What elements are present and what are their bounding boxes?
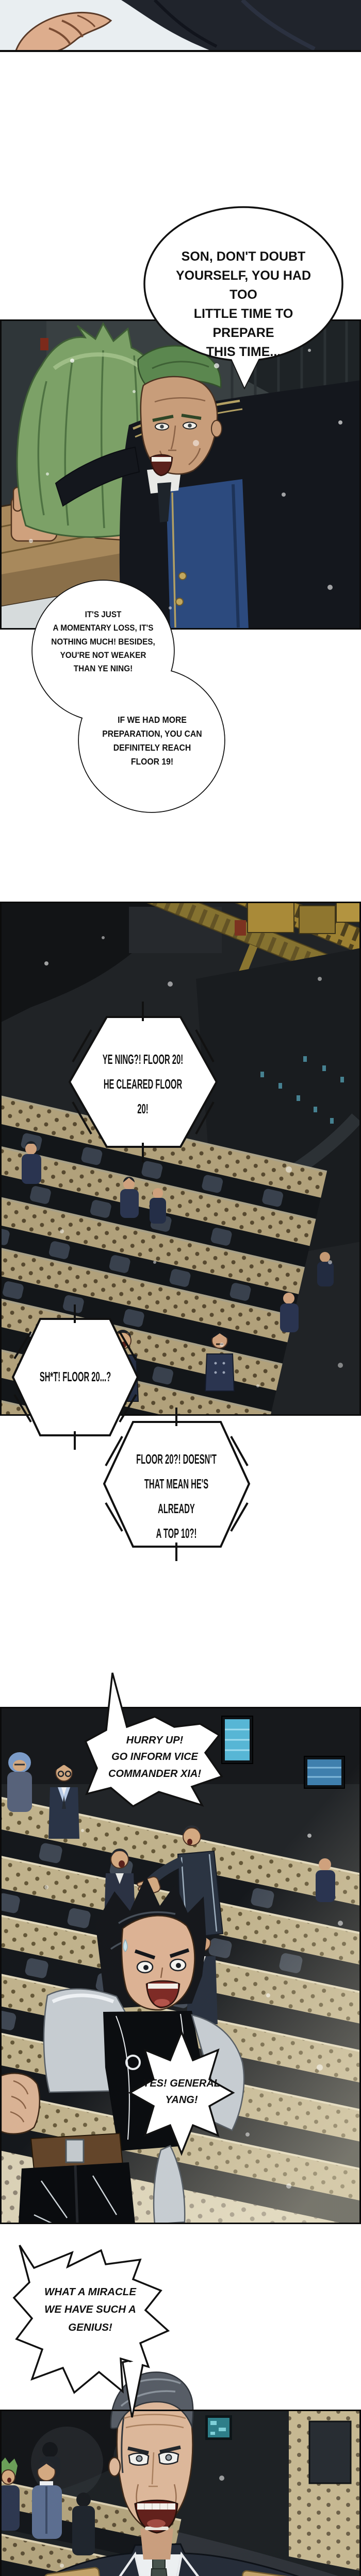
speech-bubble-3-text: IF WE HAD MORE PREPARATION, YOU CAN DEFI…: [92, 713, 212, 769]
panel-general-art: [0, 2349, 361, 2576]
panel-arena-reaction: [0, 1707, 361, 2224]
panel-previous-scene: [0, 0, 361, 52]
speech-bubble-6-text: FLOOR 20?! DOESN'T THAT MEAN HE'S ALREAD…: [133, 1447, 221, 1546]
panel-reaction-art: [0, 1707, 361, 2224]
hooded-woman: [7, 1752, 32, 1812]
belt-buckle: [66, 2140, 84, 2162]
jacket-chest: [103, 2011, 202, 2151]
panel-arena-announcement: [0, 902, 361, 1416]
speech-bubble-9-text: WHAT A MIRACLE WE HAVE SUCH A GENIUS!: [26, 2283, 155, 2336]
panel-arena-art: [0, 902, 361, 1416]
teal-screen: [205, 2415, 232, 2440]
panel-border: [0, 50, 361, 52]
panel-father-son: [0, 319, 361, 630]
green-haired-figure: [0, 2458, 20, 2531]
red-lamp: [40, 338, 48, 350]
runner-left-fist: [1, 2073, 40, 2133]
panel-father-son-art: [0, 319, 361, 630]
speech-bubble-6-shape: [104, 1408, 249, 1561]
panel-general-shouting: [0, 2349, 361, 2576]
panel-previous-scene-art: [0, 0, 361, 52]
webtoon-page: SON, DON'T DOUBT YOURSELF, YOU HAD TOO L…: [0, 0, 361, 2576]
